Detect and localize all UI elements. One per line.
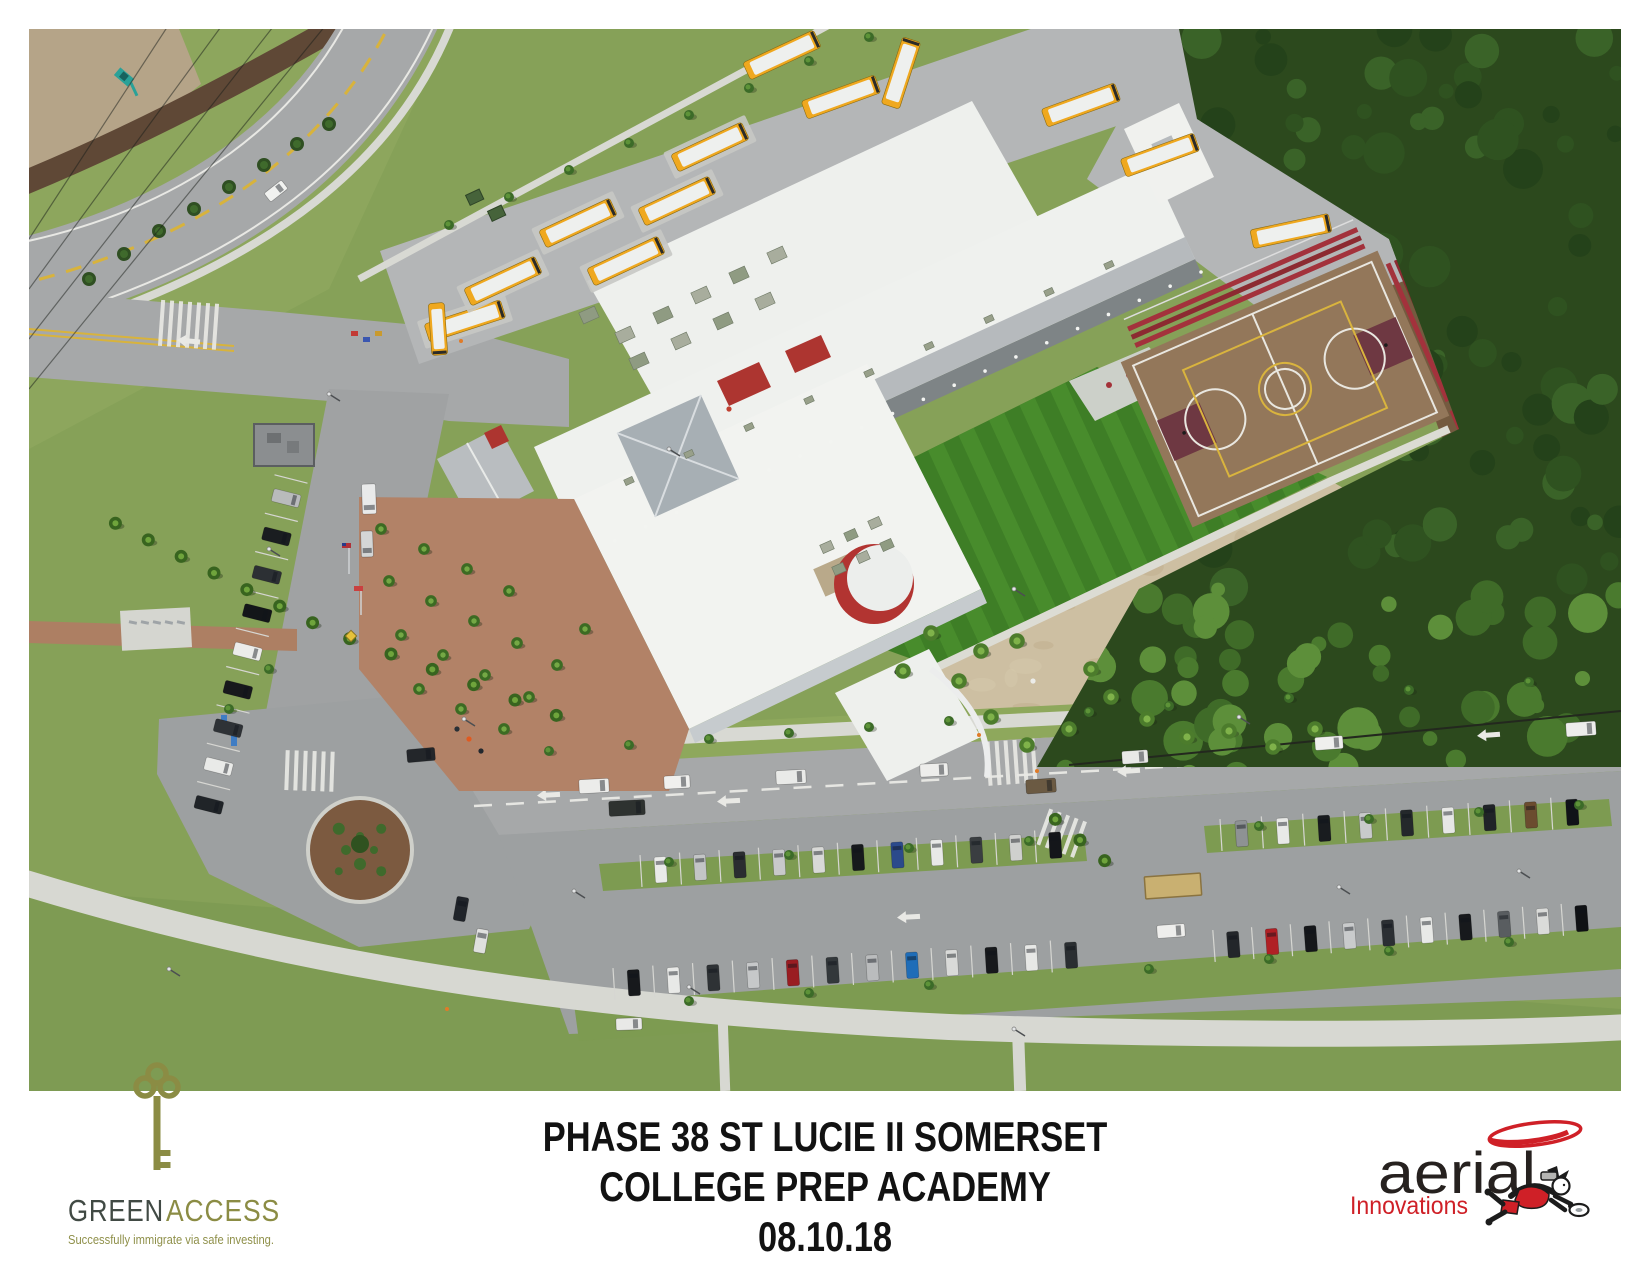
tree-canopy — [1399, 707, 1420, 728]
tree-canopy — [1410, 113, 1427, 130]
tree-canopy — [1283, 149, 1305, 171]
tree-canopy — [1446, 750, 1466, 770]
tree-canopy — [1294, 643, 1321, 670]
column — [860, 426, 864, 430]
sand-mottle — [968, 678, 996, 692]
tree-canopy — [1255, 43, 1288, 76]
tree-canopy — [1465, 34, 1500, 69]
picnic-table — [1106, 382, 1112, 388]
vehicle — [579, 778, 610, 794]
tree-canopy — [1428, 615, 1453, 640]
traffic-cone — [1035, 769, 1039, 773]
tree-canopy — [1575, 671, 1590, 686]
shrub — [376, 824, 386, 834]
tree-canopy — [1140, 646, 1166, 672]
tree-canopy — [1543, 106, 1560, 123]
column — [798, 454, 802, 458]
column — [736, 482, 740, 486]
person — [1030, 678, 1035, 683]
tree-canopy — [1341, 135, 1365, 159]
tree-canopy — [1357, 104, 1372, 119]
column — [1138, 299, 1142, 303]
brand-access: ACCESS — [166, 1193, 280, 1228]
vehicle — [664, 775, 691, 789]
playground-item — [363, 337, 370, 342]
tree-canopy — [1328, 622, 1354, 648]
vehicle — [1026, 778, 1057, 794]
column — [1076, 327, 1080, 331]
shrub — [341, 845, 351, 855]
tree-canopy — [1373, 665, 1389, 681]
shrub — [333, 823, 345, 835]
light-pole — [1337, 885, 1341, 889]
tree-canopy — [1194, 616, 1217, 639]
aerial-innovations-logo: aerial Innovations — [1280, 1108, 1625, 1258]
tree-canopy — [1496, 525, 1520, 549]
light-pole — [1517, 869, 1521, 873]
column — [829, 440, 833, 444]
shrub — [354, 858, 366, 870]
tree-canopy — [1529, 698, 1544, 713]
shrub — [376, 866, 386, 876]
tree-canopy — [1469, 339, 1497, 367]
person — [466, 736, 471, 741]
vehicle — [1122, 750, 1149, 765]
tree-canopy — [1477, 119, 1518, 160]
tree-canopy — [1285, 114, 1303, 132]
light-pole — [1012, 587, 1016, 591]
tree-canopy — [1574, 400, 1609, 435]
tree-canopy — [1447, 316, 1478, 347]
column — [952, 383, 956, 387]
column — [675, 511, 679, 515]
tree-canopy — [1225, 620, 1254, 649]
vehicle — [616, 1018, 642, 1031]
tree-canopy — [1222, 670, 1249, 697]
tree-canopy — [1171, 680, 1196, 705]
light-pole — [1237, 715, 1241, 719]
tree-canopy — [1362, 519, 1391, 548]
light-pole — [327, 392, 331, 396]
tree-canopy — [1255, 29, 1271, 44]
tree-canopy — [1525, 596, 1557, 628]
tree-canopy — [1557, 135, 1574, 152]
person — [478, 748, 483, 753]
playground-item — [375, 331, 382, 336]
school-bus — [428, 303, 448, 356]
tree-canopy — [1211, 583, 1225, 597]
column — [1199, 270, 1203, 274]
tree-canopy — [1381, 596, 1396, 611]
tree-canopy — [1548, 297, 1567, 316]
tree-canopy — [1131, 680, 1167, 716]
greenaccess-logo-svg: GREEN ACCESS Successfully immigrate via … — [40, 1058, 310, 1258]
vehicle — [776, 769, 807, 785]
light-pole — [667, 447, 671, 451]
vehicle — [1566, 721, 1597, 737]
tree-canopy — [1287, 79, 1307, 99]
column — [613, 539, 617, 543]
light-pole — [167, 967, 171, 971]
column — [983, 369, 987, 373]
island-pine — [351, 835, 369, 853]
tree-canopy — [1556, 563, 1587, 594]
tree-canopy — [1461, 691, 1495, 725]
column — [1045, 341, 1049, 345]
tree-canopy — [1533, 434, 1560, 461]
storage-container — [1144, 873, 1201, 899]
tree-canopy — [1219, 649, 1241, 671]
tree-canopy — [1522, 394, 1554, 426]
column — [1168, 284, 1172, 288]
tree-canopy — [1506, 427, 1524, 445]
tree-canopy — [1455, 81, 1482, 108]
person — [726, 406, 731, 411]
light-pole — [1012, 1027, 1016, 1031]
vehicle — [361, 531, 374, 557]
light-pole — [462, 717, 466, 721]
innovations-wordmark: Innovations — [1350, 1192, 1468, 1220]
column — [1014, 355, 1018, 359]
tree-canopy — [1409, 246, 1450, 287]
light-pole — [687, 985, 691, 989]
tree-canopy — [1162, 594, 1193, 625]
column — [1107, 313, 1111, 317]
aerial-innovations-logo-svg: aerial Innovations — [1280, 1108, 1625, 1258]
tree-canopy — [1389, 59, 1427, 97]
tree-canopy — [1545, 456, 1581, 492]
tree-canopy — [1568, 203, 1593, 228]
tree-canopy — [1177, 657, 1198, 678]
tree-canopy — [1600, 552, 1618, 570]
florida-flag — [354, 586, 363, 591]
tree-canopy — [1527, 716, 1568, 757]
utility-box — [267, 433, 281, 443]
tree-canopy — [1568, 234, 1591, 257]
column — [644, 525, 648, 529]
tree-canopy — [1587, 515, 1603, 531]
tree-canopy — [1471, 580, 1504, 613]
vehicle — [406, 747, 435, 762]
bike-pad — [120, 607, 192, 651]
utility-pad — [254, 424, 314, 466]
shrub — [335, 867, 343, 875]
tree-canopy — [1423, 507, 1457, 541]
shrub — [370, 846, 378, 854]
column — [767, 468, 771, 472]
traffic-cone — [445, 1007, 449, 1011]
tree-canopy — [1523, 625, 1558, 660]
tree-canopy — [1501, 352, 1521, 372]
traffic-cone — [977, 733, 981, 737]
greenaccess-logo: GREEN ACCESS Successfully immigrate via … — [40, 1058, 310, 1258]
sand-mottle — [1009, 658, 1041, 674]
brand-tagline: Successfully immigrate via safe investin… — [68, 1233, 274, 1247]
vehicle — [609, 800, 646, 817]
tree-canopy — [1363, 132, 1404, 173]
sand-mottle — [1033, 641, 1053, 649]
column — [706, 497, 710, 501]
traffic-cone — [459, 339, 463, 343]
us-flag-canton — [342, 543, 346, 546]
tree-canopy — [1470, 450, 1495, 475]
light-pole — [267, 547, 271, 551]
vehicle — [1157, 924, 1186, 939]
tree-canopy — [1568, 593, 1608, 633]
tree-canopy — [1369, 645, 1391, 667]
aerial-photograph — [29, 29, 1621, 1091]
key-icon — [136, 1065, 178, 1170]
utility-box — [287, 441, 299, 453]
vehicle — [920, 763, 949, 777]
aerial-scene — [29, 29, 1621, 1091]
tree-canopy — [1439, 84, 1454, 99]
person — [454, 726, 459, 731]
tree-canopy — [1423, 731, 1438, 746]
vehicle — [1315, 736, 1344, 751]
tree-canopy — [1571, 507, 1590, 526]
tree-canopy — [1587, 374, 1618, 405]
vehicle — [361, 484, 376, 514]
brand-green: GREEN — [68, 1193, 164, 1228]
playground-item — [351, 331, 358, 336]
column — [891, 412, 895, 416]
column — [922, 398, 926, 402]
light-pole — [572, 889, 576, 893]
